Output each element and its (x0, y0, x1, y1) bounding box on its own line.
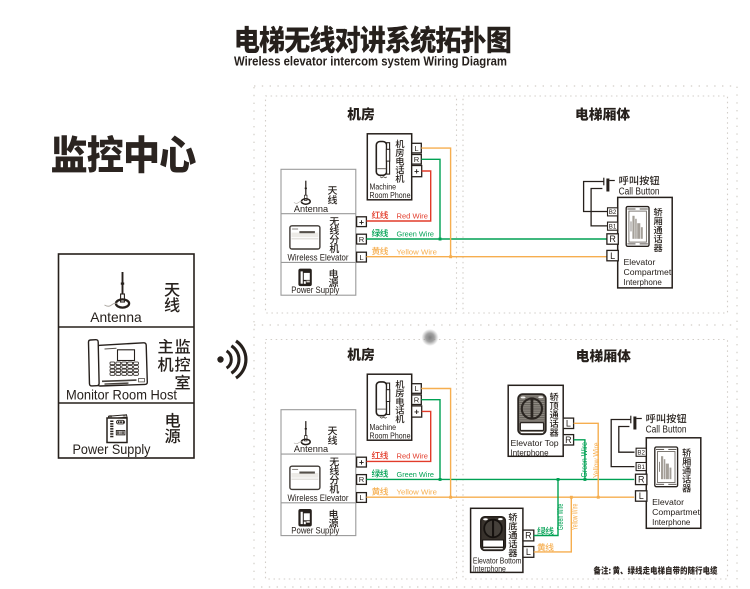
svg-text:Interphone: Interphone (624, 277, 662, 287)
svg-text:Compartmet: Compartmet (652, 507, 700, 517)
svg-text:+: + (359, 217, 364, 227)
svg-text:Green Wire: Green Wire (397, 470, 435, 479)
svg-text:Yellow Wire: Yellow Wire (397, 488, 438, 497)
svg-text:Green Wire: Green Wire (580, 442, 589, 478)
svg-text:+: + (414, 407, 419, 417)
svg-text:Interphone: Interphone (511, 448, 549, 458)
svg-text:Call Button: Call Button (619, 187, 660, 198)
svg-text:Call Button: Call Button (646, 425, 687, 436)
svg-text:Green Wire: Green Wire (397, 229, 435, 238)
svg-text:Yellow Wire: Yellow Wire (397, 247, 438, 256)
svg-text:Yellow Wire: Yellow Wire (592, 442, 601, 478)
svg-text:Interphone: Interphone (652, 517, 690, 527)
svg-text:R: R (525, 531, 532, 541)
svg-text:Wireless elevator intercom sys: Wireless elevator intercom system Wiring… (234, 54, 507, 69)
svg-text:Interphone: Interphone (473, 564, 506, 574)
svg-text:L: L (526, 547, 531, 557)
svg-text:L: L (414, 144, 418, 153)
svg-text:L: L (359, 493, 363, 502)
svg-text:B1: B1 (609, 223, 617, 230)
svg-text:Antenna: Antenna (294, 444, 329, 454)
svg-text:Yellow Wire: Yellow Wire (571, 503, 580, 530)
svg-text:+: + (359, 457, 364, 467)
svg-text:B1: B1 (637, 464, 645, 471)
svg-text:R: R (414, 395, 420, 404)
svg-text:R: R (359, 475, 365, 484)
svg-text:Room Phone: Room Phone (370, 430, 411, 440)
svg-text:Compartmet: Compartmet (624, 267, 672, 277)
svg-text:R: R (638, 475, 645, 485)
svg-text:L: L (359, 253, 363, 262)
svg-text:B2: B2 (637, 450, 645, 457)
svg-text:L: L (610, 251, 615, 261)
svg-text:R: R (359, 235, 365, 244)
svg-text:Wireless Elevator: Wireless Elevator (288, 253, 349, 263)
svg-text:B2: B2 (609, 209, 617, 216)
svg-text:Antenna: Antenna (90, 310, 142, 325)
svg-text:L: L (639, 491, 644, 501)
svg-text:R: R (609, 234, 616, 244)
svg-text:Power Supply: Power Supply (73, 442, 151, 457)
svg-text:Power Supply: Power Supply (291, 285, 339, 295)
svg-text:+: + (414, 166, 419, 176)
svg-text:Elevator: Elevator (652, 497, 684, 507)
svg-text:Wireless Elevator: Wireless Elevator (288, 493, 349, 503)
svg-text:Red Wire: Red Wire (397, 452, 429, 461)
svg-text:R: R (565, 435, 572, 445)
svg-text:Room Phone: Room Phone (370, 190, 411, 200)
svg-text:R: R (414, 155, 420, 164)
svg-text:Green Wire: Green Wire (556, 503, 565, 530)
svg-text:Power Supply: Power Supply (291, 525, 339, 535)
svg-text:Antenna: Antenna (294, 204, 329, 214)
svg-text:Elevator: Elevator (624, 257, 656, 267)
svg-text:L: L (566, 419, 571, 429)
svg-text:L: L (414, 384, 418, 393)
svg-text:Monitor Room Host: Monitor Room Host (66, 388, 177, 403)
svg-text:Red Wire: Red Wire (397, 211, 429, 220)
